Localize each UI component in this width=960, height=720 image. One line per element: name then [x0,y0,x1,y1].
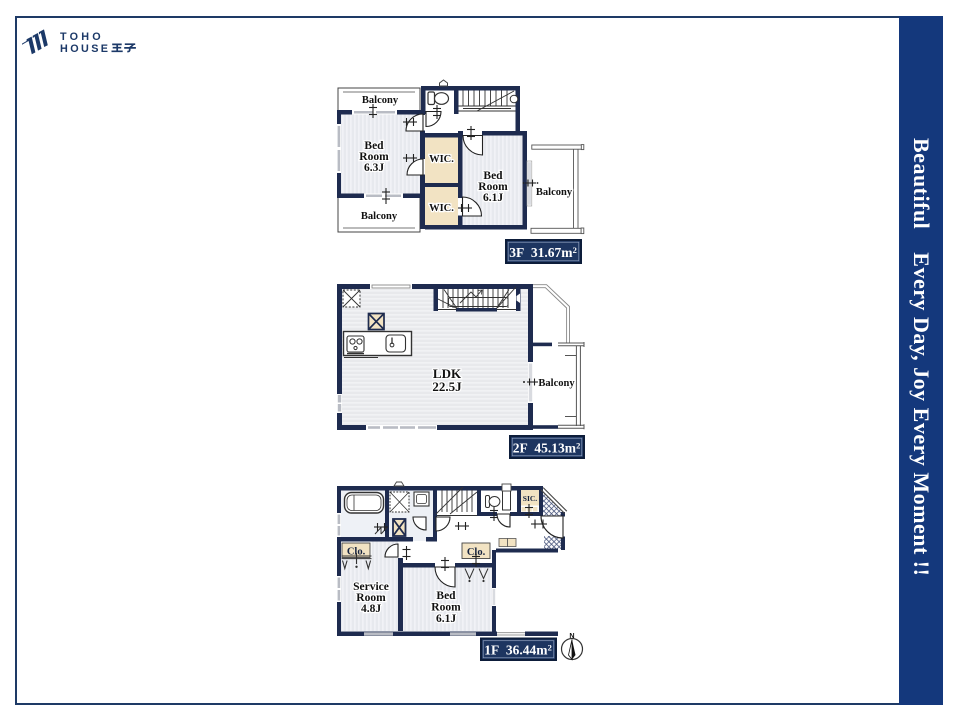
svg-text:Balcony: Balcony [536,187,573,198]
svg-text:WIC.: WIC. [429,154,454,165]
svg-text:TOHO: TOHO [60,31,104,43]
svg-text:4.8J: 4.8J [361,603,381,615]
svg-text:22.5J: 22.5J [432,379,462,394]
svg-text:Balcony: Balcony [362,95,399,106]
svg-text:Balcony: Balcony [538,378,575,389]
svg-text:Balcony: Balcony [361,211,398,222]
svg-text:3F 31.67m2: 3F 31.67m2 [509,245,577,260]
svg-text:Bed: Bed [436,590,456,602]
svg-text:2F 45.13m2: 2F 45.13m2 [513,441,581,456]
svg-text:6.1J: 6.1J [436,613,456,625]
svg-text:1F 36.44m2: 1F 36.44m2 [484,643,552,658]
svg-text:Room: Room [431,602,461,614]
svg-text:SIC.: SIC. [523,494,538,503]
svg-text:WIC.: WIC. [429,203,454,214]
svg-text:HOUSE: HOUSE [60,43,110,55]
svg-text:N: N [569,631,574,640]
svg-text:6.3J: 6.3J [364,162,384,174]
svg-text:6.1J: 6.1J [483,192,503,204]
